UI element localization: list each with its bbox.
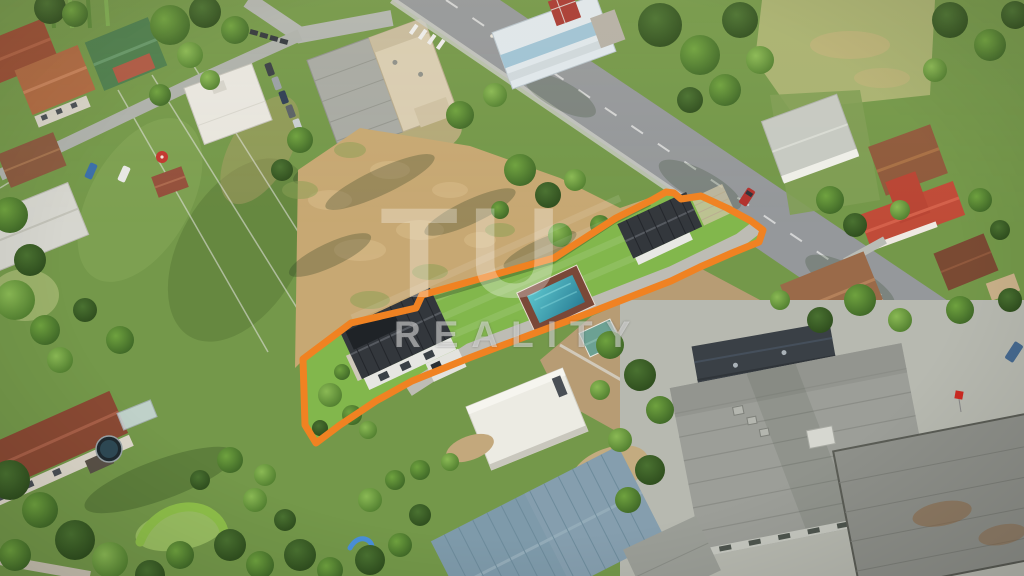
red-road-sign — [954, 390, 963, 399]
aerial-photograph — [0, 0, 1024, 576]
aerial-photo-canvas: TU REALITY — [0, 0, 1024, 576]
